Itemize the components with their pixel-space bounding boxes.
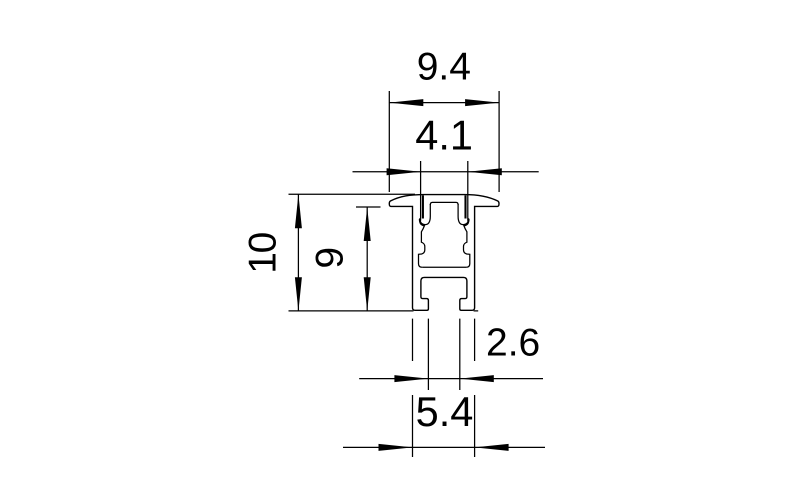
- svg-text:9: 9: [309, 247, 352, 269]
- svg-text:4.1: 4.1: [415, 111, 473, 158]
- svg-text:5.4: 5.4: [416, 388, 474, 435]
- svg-text:2.6: 2.6: [486, 322, 540, 365]
- svg-text:10: 10: [242, 232, 285, 273]
- svg-text:9.4: 9.4: [417, 46, 471, 89]
